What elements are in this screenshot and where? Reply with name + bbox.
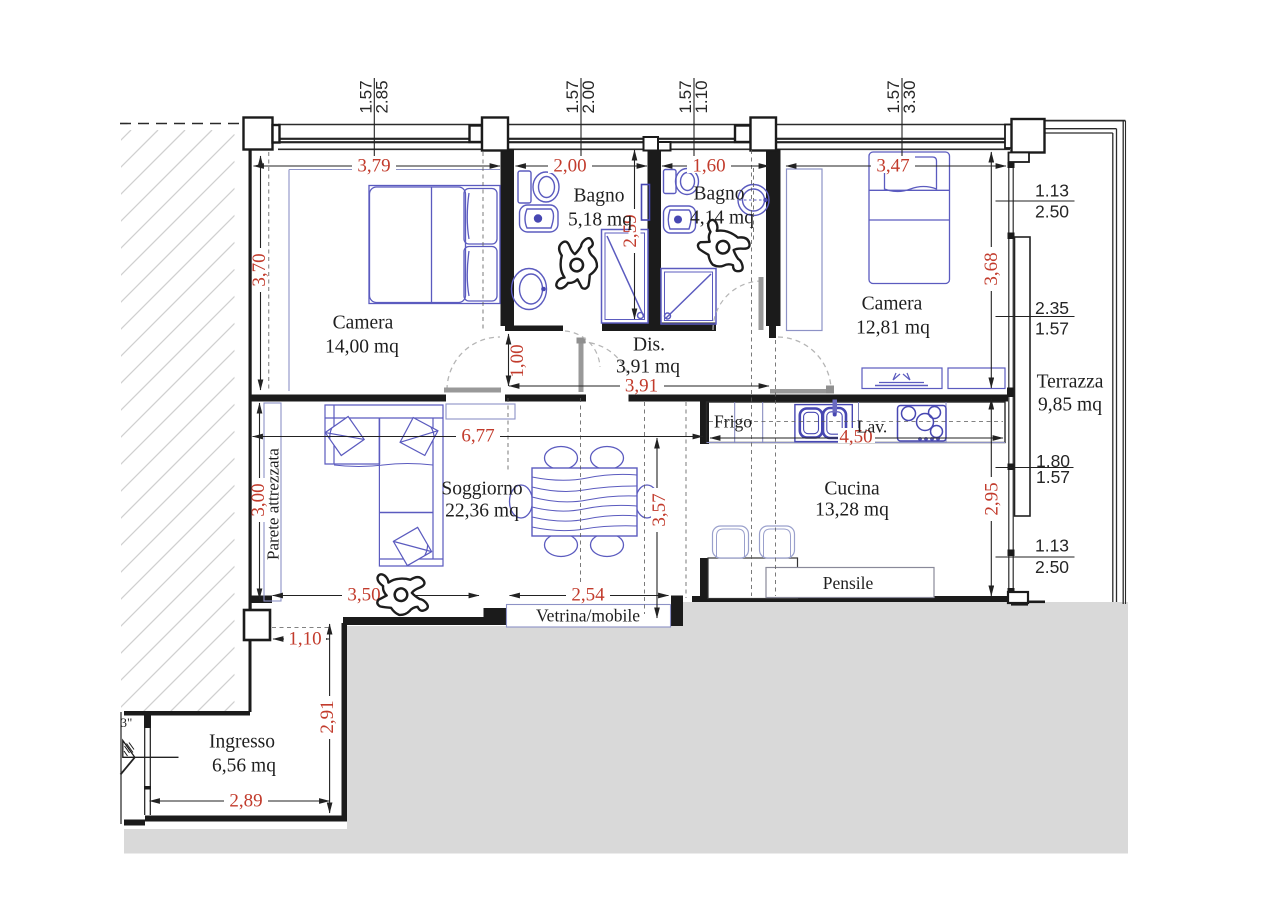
svg-text:22,36 mq: 22,36 mq (445, 501, 519, 522)
svg-text:12,81 mq: 12,81 mq (856, 318, 930, 339)
svg-text:14,00 mq: 14,00 mq (325, 337, 399, 358)
svg-text:9,85 mq: 9,85 mq (1038, 395, 1102, 416)
svg-text:3,79: 3,79 (357, 156, 390, 177)
svg-text:13,28 mq: 13,28 mq (815, 500, 889, 521)
svg-text:Camera: Camera (333, 313, 394, 334)
svg-text:3,47: 3,47 (876, 156, 909, 177)
svg-text:2,54: 2,54 (571, 585, 605, 606)
svg-text:Cucina: Cucina (824, 479, 880, 500)
svg-text:1.13: 1.13 (1035, 536, 1069, 556)
svg-text:6,77: 6,77 (461, 426, 494, 447)
svg-text:2,00: 2,00 (553, 156, 586, 177)
svg-text:4,14 mq: 4,14 mq (690, 208, 754, 229)
svg-text:Soggiorno: Soggiorno (441, 479, 522, 500)
svg-text:2.50: 2.50 (1035, 557, 1069, 577)
svg-text:Camera: Camera (862, 294, 923, 315)
svg-text:3,57: 3,57 (649, 493, 670, 526)
svg-text:5,18 mq: 5,18 mq (568, 210, 632, 231)
svg-text:3.30: 3.30 (900, 80, 919, 113)
svg-text:Bagno: Bagno (694, 184, 745, 205)
svg-text:1.13: 1.13 (1035, 181, 1069, 201)
svg-text:Parete attrezzata: Parete attrezzata (264, 448, 283, 560)
svg-text:1,00: 1,00 (507, 344, 528, 377)
svg-text:2.00: 2.00 (579, 80, 598, 113)
svg-text:1.10: 1.10 (692, 80, 711, 113)
svg-text:3,50: 3,50 (347, 585, 380, 606)
svg-text:3,91: 3,91 (625, 376, 658, 397)
svg-text:2.50: 2.50 (1035, 202, 1069, 222)
svg-text:1,10: 1,10 (288, 629, 321, 650)
svg-text:1,60: 1,60 (692, 156, 725, 177)
svg-text:3,70: 3,70 (249, 253, 270, 286)
svg-text:1.57: 1.57 (1036, 467, 1070, 487)
svg-text:3,91 mq: 3,91 mq (616, 357, 680, 378)
svg-text:Vetrina/mobile: Vetrina/mobile (536, 606, 640, 626)
svg-text:Frigo: Frigo (714, 412, 752, 432)
svg-text:2,91: 2,91 (317, 700, 338, 733)
svg-text:2,95: 2,95 (982, 482, 1003, 515)
svg-text:Dis.: Dis. (633, 335, 665, 356)
svg-text:6,56 mq: 6,56 mq (212, 756, 276, 777)
svg-text:Terrazza: Terrazza (1037, 372, 1104, 393)
svg-text:2.35: 2.35 (1035, 298, 1069, 318)
svg-text:Pensile: Pensile (823, 573, 874, 593)
svg-text:3,68: 3,68 (981, 252, 1002, 285)
svg-text:2,89: 2,89 (229, 791, 262, 812)
svg-text:3": 3" (121, 715, 133, 730)
svg-text:Ingresso: Ingresso (209, 732, 275, 753)
svg-text:1.57: 1.57 (1035, 319, 1069, 339)
svg-text:Bagno: Bagno (574, 186, 625, 207)
svg-text:Lav.: Lav. (857, 417, 887, 437)
svg-text:2.85: 2.85 (373, 80, 392, 113)
